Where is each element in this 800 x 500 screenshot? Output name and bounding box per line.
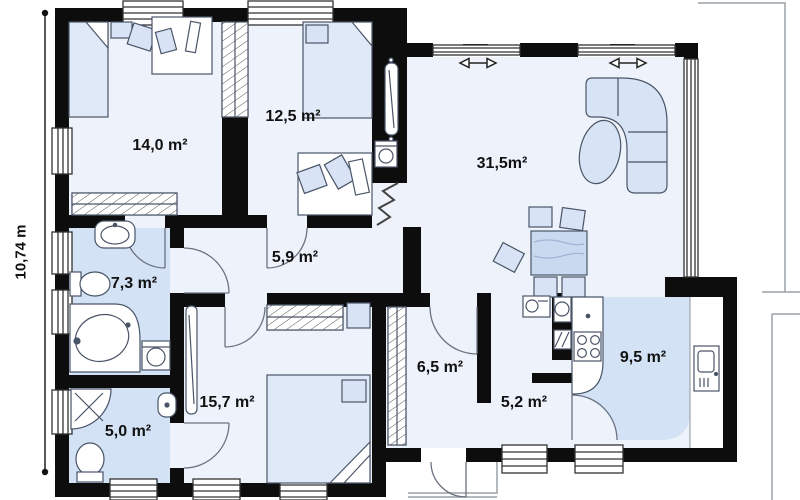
wc-basin [158, 393, 176, 417]
room-label-living-room: 31,5m² [477, 155, 528, 173]
wardrobe-1 [72, 193, 177, 215]
room-label-kitchen: 9,5 m² [620, 349, 666, 367]
kitchen-sink [554, 297, 571, 322]
bed-single-1 [69, 22, 108, 117]
sliding-glass-1 [433, 45, 520, 55]
window-left-1 [52, 128, 72, 174]
window-bottom-1 [110, 479, 157, 500]
room-label-bathroom: 7,3 m² [111, 275, 157, 293]
floor-plan-page: 10,74 m 14,0 m² 12,5 m² 31,5m² 5,9 m² 7,… [0, 0, 800, 500]
sliding-glass-2 [578, 45, 675, 55]
radiator-bedroom-3 [186, 306, 197, 414]
desk-1 [152, 17, 212, 74]
wardrobe-2 [222, 22, 248, 117]
toilet-wc [76, 443, 104, 482]
nightstand-3 [347, 303, 370, 328]
wardrobe-3 [267, 305, 343, 330]
fridge [694, 346, 719, 391]
bathroom-sink [95, 221, 135, 248]
wall-boiler [523, 296, 550, 317]
room-label-corridor: 5,2 m² [501, 394, 547, 412]
room-label-bedroom-2: 12,5 m² [265, 108, 320, 126]
nightstand-1 [111, 22, 132, 38]
dimension-line [42, 10, 48, 475]
washing-machine [142, 341, 170, 370]
room-label-bedroom-1: 14,0 m² [132, 137, 187, 155]
kitchen-vent [554, 330, 571, 349]
window-bottom-right-2 [575, 445, 623, 473]
bed-single-2 [303, 22, 372, 118]
kitchen-counter [572, 297, 603, 394]
toilet-bathroom [70, 272, 110, 296]
window-right-strip [684, 59, 698, 277]
bed-double [267, 375, 370, 483]
boiler-chimney [375, 141, 397, 167]
door-main-entrance [431, 462, 466, 497]
dimension-label: 10,74 m [13, 224, 30, 279]
radiator-living [385, 58, 398, 141]
room-label-entry-hall: 6,5 m² [417, 359, 463, 377]
window-bottom-2 [193, 479, 240, 500]
room-label-hallway: 5,9 m² [272, 249, 318, 267]
window-left-3 [52, 290, 72, 334]
window-bottom-right-1 [502, 445, 547, 473]
window-left-4 [52, 390, 72, 434]
wardrobe-entry [388, 307, 406, 445]
window-left-2 [52, 232, 72, 274]
corner-bathtub [69, 304, 140, 372]
room-label-bedroom-3: 15,7 m² [199, 394, 254, 412]
room-label-wc: 5,0 m² [105, 423, 151, 441]
